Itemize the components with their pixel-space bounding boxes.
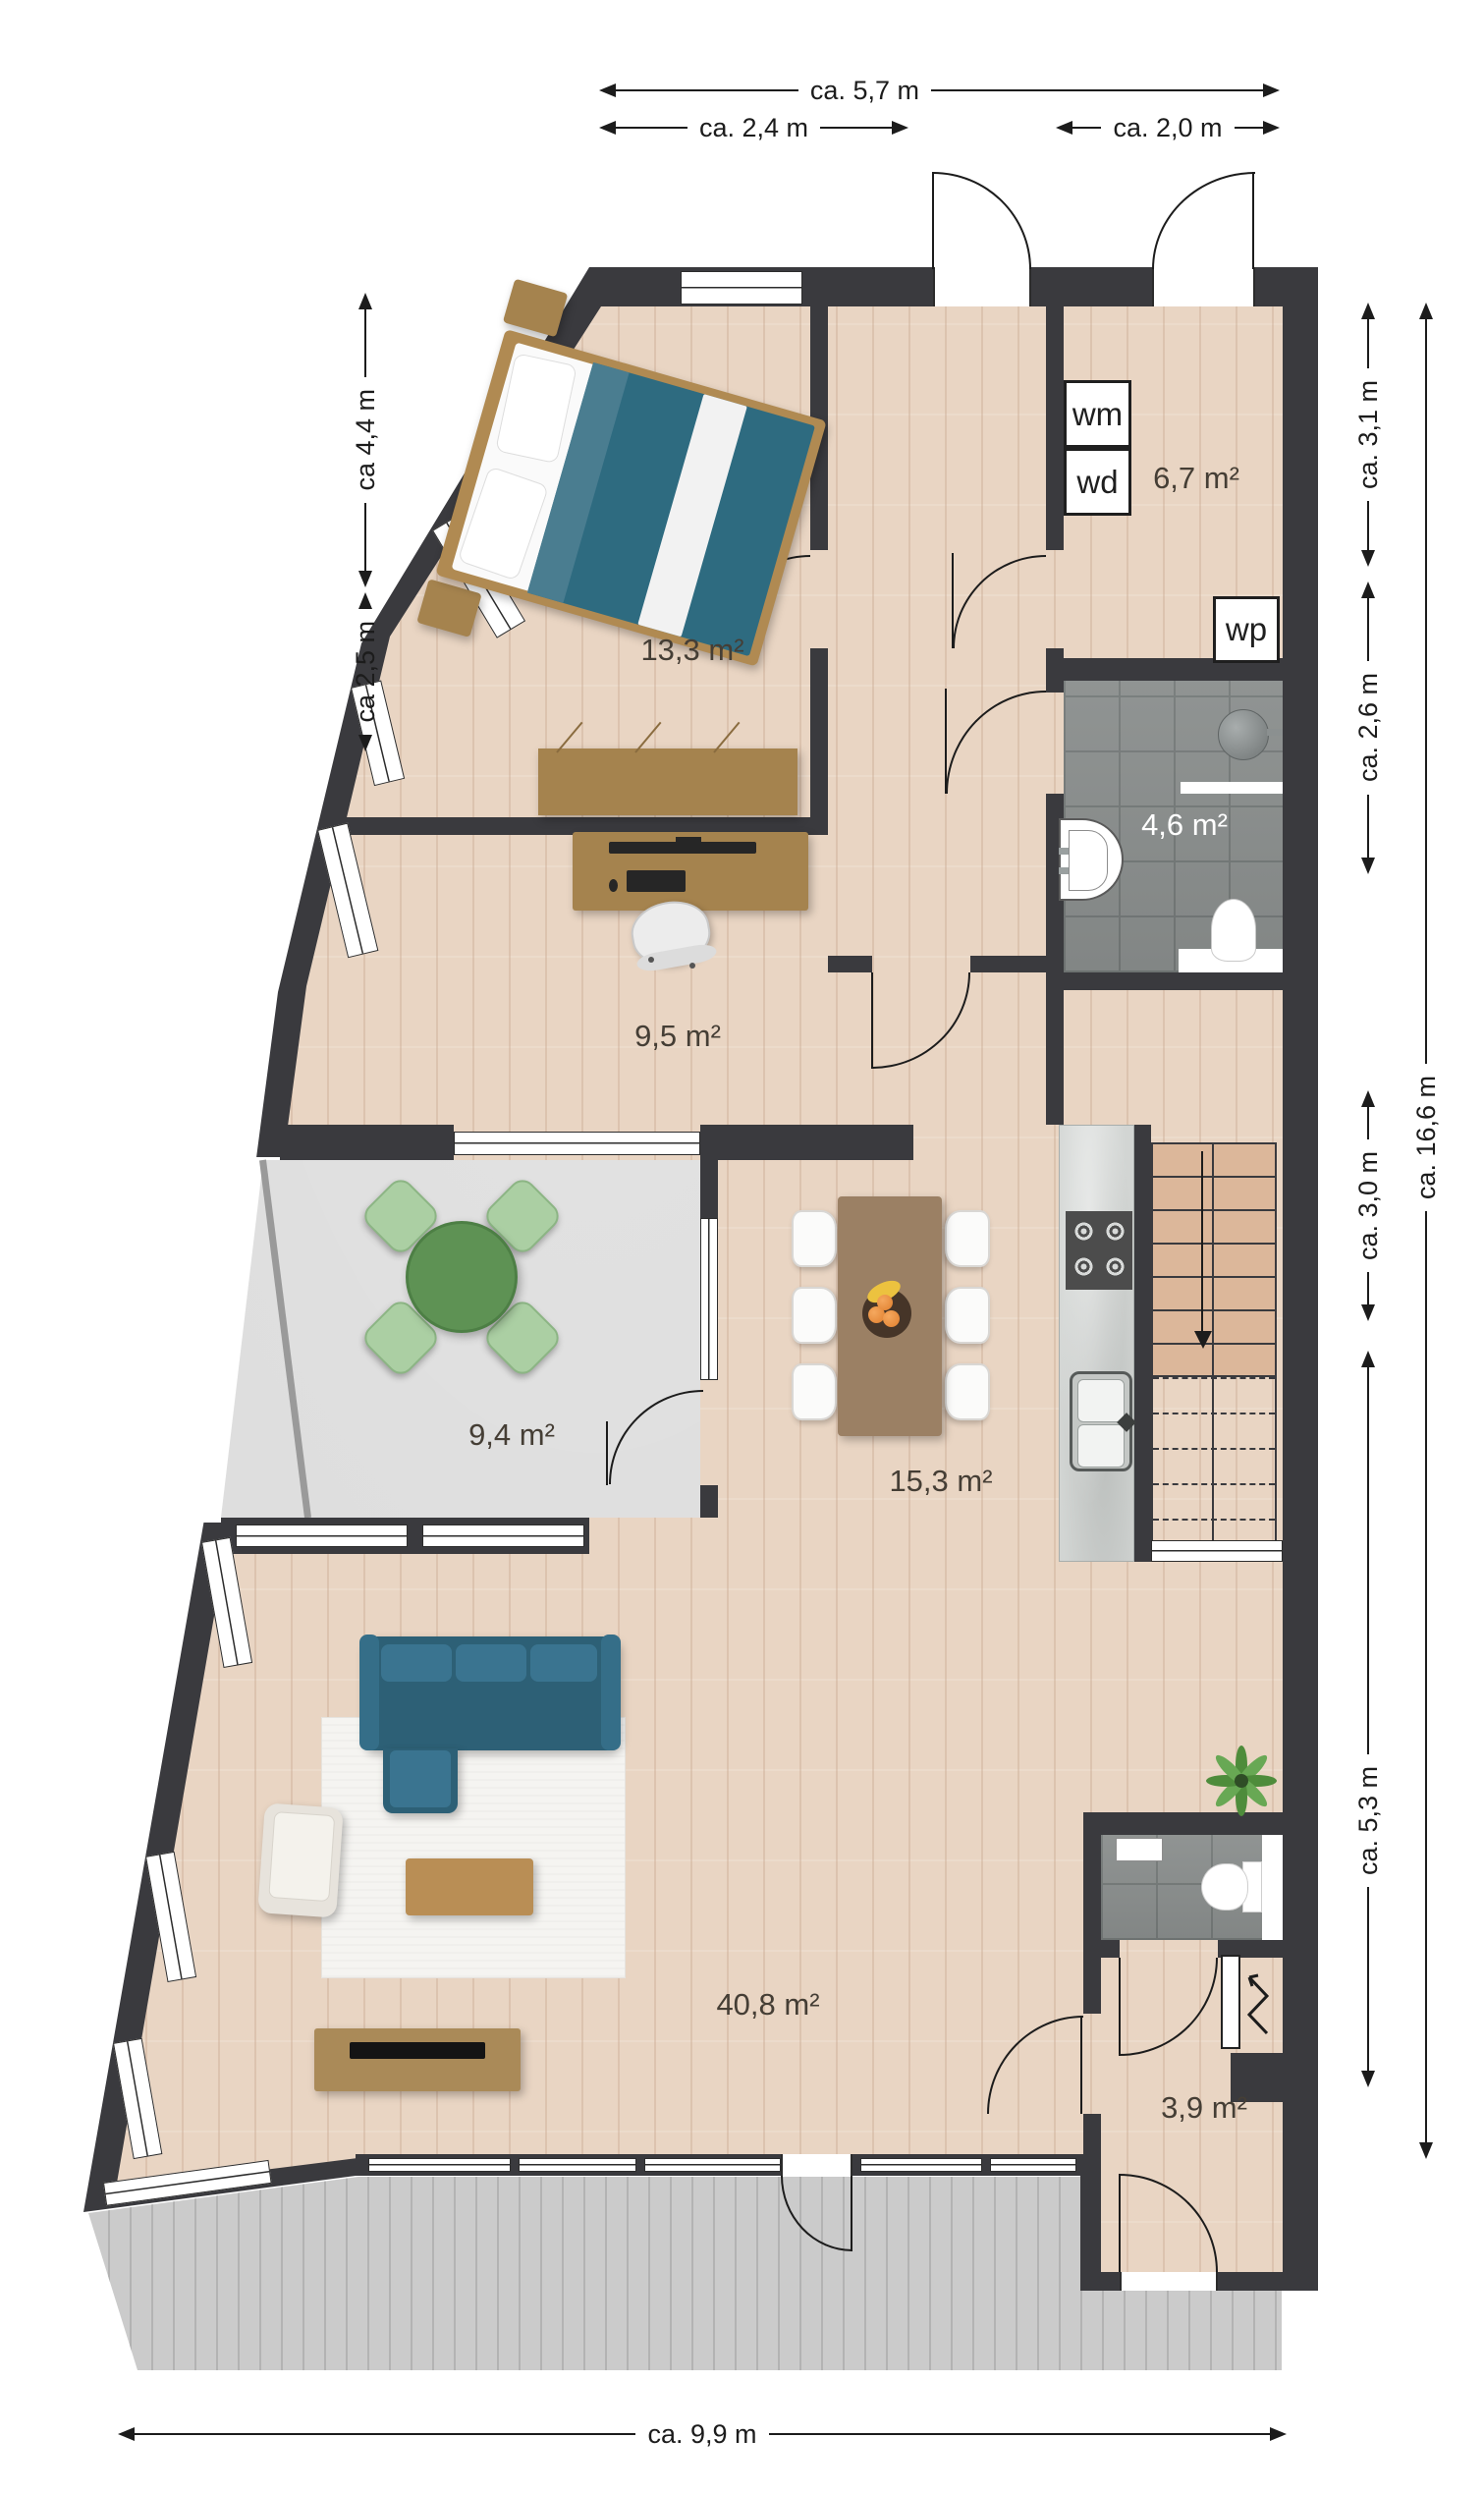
hall-deck-door-opening [1120,2272,1218,2291]
burner-icon [1102,1218,1128,1245]
dim-right-kitchen: ca. 3,0 m [1352,1090,1384,1321]
balcony-table [406,1221,518,1333]
dining-chair [945,1363,990,1420]
arrow-up-icon [1361,582,1375,598]
sofa-back-cushion [381,1644,452,1682]
wall-top-2 [802,267,933,306]
dim-top-left: ca. 2,4 m [599,115,908,140]
dim-label: ca. 3,1 m [1355,368,1382,501]
toilet [1212,900,1255,961]
arrow-up-icon [1361,303,1375,319]
dim-right-living: ca. 5,3 m [1352,1351,1384,2087]
armchair-seat [268,1811,335,1902]
dim-line [616,127,687,129]
terrace-door-opening [781,2154,852,2176]
wall-bath-left-a [1046,681,1064,693]
wall-bedroom-right-b [810,648,828,817]
dim-left-office: ca 2,5 m [350,592,381,747]
dim-line [616,89,798,91]
living-hall-door-leaf [1080,2016,1082,2114]
dim-line [364,503,366,571]
wall-corridor-stub-l [828,956,872,972]
dim-line [769,2433,1270,2435]
bathroom-shelf [1181,782,1283,794]
arrow-down-icon [1361,1304,1375,1321]
dim-top-full: ca. 5,7 m [599,78,1280,103]
shower-head-icon [1218,709,1269,760]
dim-line [1367,1272,1369,1304]
dim-right-utility: ca. 3,1 m [1352,303,1384,567]
arrow-down-icon [1419,2142,1433,2159]
dim-label: ca 2,5 m [353,609,379,735]
dim-line [1367,598,1369,661]
arrow-up-icon [358,293,372,309]
living-bottom-window-5 [990,2158,1076,2172]
heat-pump-label: wp [1226,611,1267,648]
balcony-area-label: 9,4 m² [468,1417,555,1453]
washing-machine-label: wm [1072,396,1123,433]
arrow-left-icon [599,83,616,97]
arrow-down-icon [1361,2071,1375,2087]
entrance-door-leaf [1221,1955,1240,2049]
dim-top-right: ca. 2,0 m [1056,115,1280,140]
dim-label: ca. 9,9 m [635,2421,768,2448]
burner-icon [1071,1253,1097,1280]
living-bottom-window-1 [368,2158,511,2172]
dining-chair [792,1287,837,1344]
wall-wc-bottom-l [1083,1940,1120,1958]
stairs-arrow-down-icon [1194,1331,1212,1349]
wall-utility-left-b [1046,648,1064,658]
dining-chair [945,1210,990,1267]
dim-label: ca. 2,0 m [1101,115,1234,141]
floor-plan: wm wd wp [0,0,1484,2494]
dim-right-total: ca. 16,6 m [1410,303,1442,2159]
wardrobe [538,748,797,815]
dim-line [1367,1107,1369,1139]
living-bottom-window-2 [519,2158,636,2172]
arrow-down-icon [1361,858,1375,874]
living-top-window-1 [236,1524,408,1547]
utility-door-opening [1152,267,1255,306]
wall-utility-left-a [1046,306,1064,550]
arrow-right-icon [1263,83,1280,97]
armchair [257,1802,344,1917]
wall-top-1 [589,267,681,306]
dim-label: ca. 2,4 m [687,115,820,141]
stairs-direction-line [1201,1151,1203,1333]
dim-line [1367,501,1369,550]
wall-hall-bottom-r [1218,2272,1318,2291]
bathroom-door-leaf [945,689,947,794]
wall-top-3 [1031,267,1152,306]
utility-door-arc [1152,172,1255,269]
dining-chair [945,1287,990,1344]
dim-label: ca. 16,6 m [1413,1064,1440,1211]
sofa-back-cushion [456,1644,526,1682]
dim-line [364,309,366,377]
balcony-door-leaf [606,1421,608,1485]
dim-label: ca. 5,3 m [1355,1754,1382,1887]
arrow-up-icon [358,592,372,609]
dim-line [820,127,892,129]
monitor-icon [609,842,756,854]
sofa-armrest [601,1635,621,1750]
utility-area-label: 6,7 m² [1153,461,1239,496]
stair-dash [1153,1413,1275,1448]
stair-dash [1153,1377,1275,1413]
dim-left-bedroom: ca 4,4 m [350,293,381,587]
arrow-right-icon [1270,2427,1287,2441]
wall-balcony-right-b [700,1485,718,1518]
terrace-door-leaf [851,2176,852,2251]
tap-icon [1059,848,1069,855]
stairs-upper-flight [1151,1142,1277,1377]
dim-bottom-total: ca. 9,9 m [118,2421,1287,2447]
arrow-down-icon [358,735,372,751]
corridor-door-leaf [871,972,873,1069]
wall-stair-divider [1134,1125,1151,1562]
stair-dash [1153,1483,1275,1519]
wc-sink [1116,1838,1163,1861]
tv-icon [350,2042,485,2059]
living-bottom-window-4 [860,2158,982,2172]
burner-icon [1102,1253,1128,1280]
wc-toilet [1202,1864,1247,1910]
monitor-stand [676,837,701,843]
dim-line [1367,1887,1369,2071]
entry-door-opening [933,267,1031,306]
hall-deck-door-leaf [1119,2174,1121,2272]
wall-hall-left-a [1083,1812,1101,2014]
wall-corridor-stub-r [970,956,1046,972]
wall-hall-left-b [1083,2114,1101,2272]
dim-line [1235,127,1263,129]
utility-door-leaf [1252,172,1254,269]
kitchen-sink [1070,1371,1132,1471]
entrance-direction-arrow-icon [1241,1963,1275,2037]
hallway-area-label: 3,9 m² [1161,2090,1247,2126]
coffee-table [406,1858,533,1915]
arrow-left-icon [599,121,616,135]
balcony-top-window [454,1132,700,1155]
kitchen-counter [1059,1125,1134,1562]
wc-shower-strip [1262,1835,1283,1940]
dim-line [1425,1211,1427,2142]
living-area-label: 40,8 m² [716,1987,819,2023]
living-bottom-window-3 [644,2158,781,2172]
mouse-icon [609,879,618,892]
arrow-right-icon [892,121,908,135]
stairs-bottom-window [1151,1540,1283,1562]
sink-basin [1077,1379,1125,1422]
arrow-right-icon [1263,121,1280,135]
dim-right-bath: ca. 2,6 m [1352,582,1384,874]
dining-chair [792,1210,837,1267]
bedroom-window [681,271,802,305]
living-top-window-2 [422,1524,584,1547]
dim-label: ca 4,4 m [353,377,379,503]
entry-door-leaf [932,172,934,269]
rug [321,1717,626,1978]
sofa-back-cushion [530,1644,597,1682]
kitchen-area-label: 15,3 m² [889,1464,992,1499]
sink-basin [1077,1424,1125,1468]
washing-machine-box: wm [1064,380,1131,448]
heat-pump-box: wp [1213,596,1280,663]
arrow-up-icon [1361,1090,1375,1107]
chair-dot [648,957,654,963]
arrow-left-icon [1056,121,1072,135]
wall-office-bottom-l [280,1125,454,1160]
office-area-label: 9,5 m² [634,1019,721,1054]
keyboard-icon [627,870,686,892]
arrow-up-icon [1419,303,1433,319]
wall-bath-bottom [1046,972,1283,990]
arrow-down-icon [1361,550,1375,567]
dim-label: ca. 3,0 m [1355,1139,1382,1272]
wall-hall-bottom-l [1083,2272,1120,2291]
utility-inner-door-leaf [952,553,954,648]
dim-label: ca. 5,7 m [798,78,931,104]
chair-dot [689,963,695,969]
dim-line [1425,319,1427,1064]
wall-kitchen-entry [1046,990,1064,1125]
entry-door-arc [933,172,1031,269]
arrow-left-icon [118,2427,135,2441]
wall-office-bottom-r [700,1125,913,1160]
wall-top-4 [1255,267,1318,306]
dim-label: ca. 2,6 m [1355,661,1382,794]
sofa-armrest [359,1635,379,1750]
wall-balcony-right-a [700,1160,718,1218]
shower-bar [1267,729,1283,736]
arrow-up-icon [1361,1351,1375,1367]
stair-dash [1153,1448,1275,1483]
dim-line [135,2433,635,2435]
dim-line [1367,1367,1369,1754]
dim-line [1072,127,1101,129]
bathroom-area-label: 4,6 m² [1141,807,1228,843]
balcony-right-window [700,1218,718,1380]
orange-icon [883,1310,900,1327]
stairs-lower-flight [1151,1377,1277,1544]
bedroom-area-label: 13,3 m² [640,633,743,668]
dim-line [1367,795,1369,858]
burner-icon [1071,1218,1097,1245]
tv-sideboard [314,2028,521,2091]
dryer-box: wd [1064,448,1131,516]
plant-icon [1205,1745,1278,1817]
wc-door-leaf [1119,1958,1121,2056]
dim-line [1367,319,1369,368]
sink-bowl [1069,830,1108,891]
arrow-down-icon [358,571,372,587]
dim-line [931,89,1263,91]
sofa-chaise-cushion [390,1750,451,1807]
tap-icon [1059,867,1069,874]
dining-chair [792,1363,837,1420]
orange-icon [877,1295,893,1310]
dryer-label: wd [1076,464,1118,501]
